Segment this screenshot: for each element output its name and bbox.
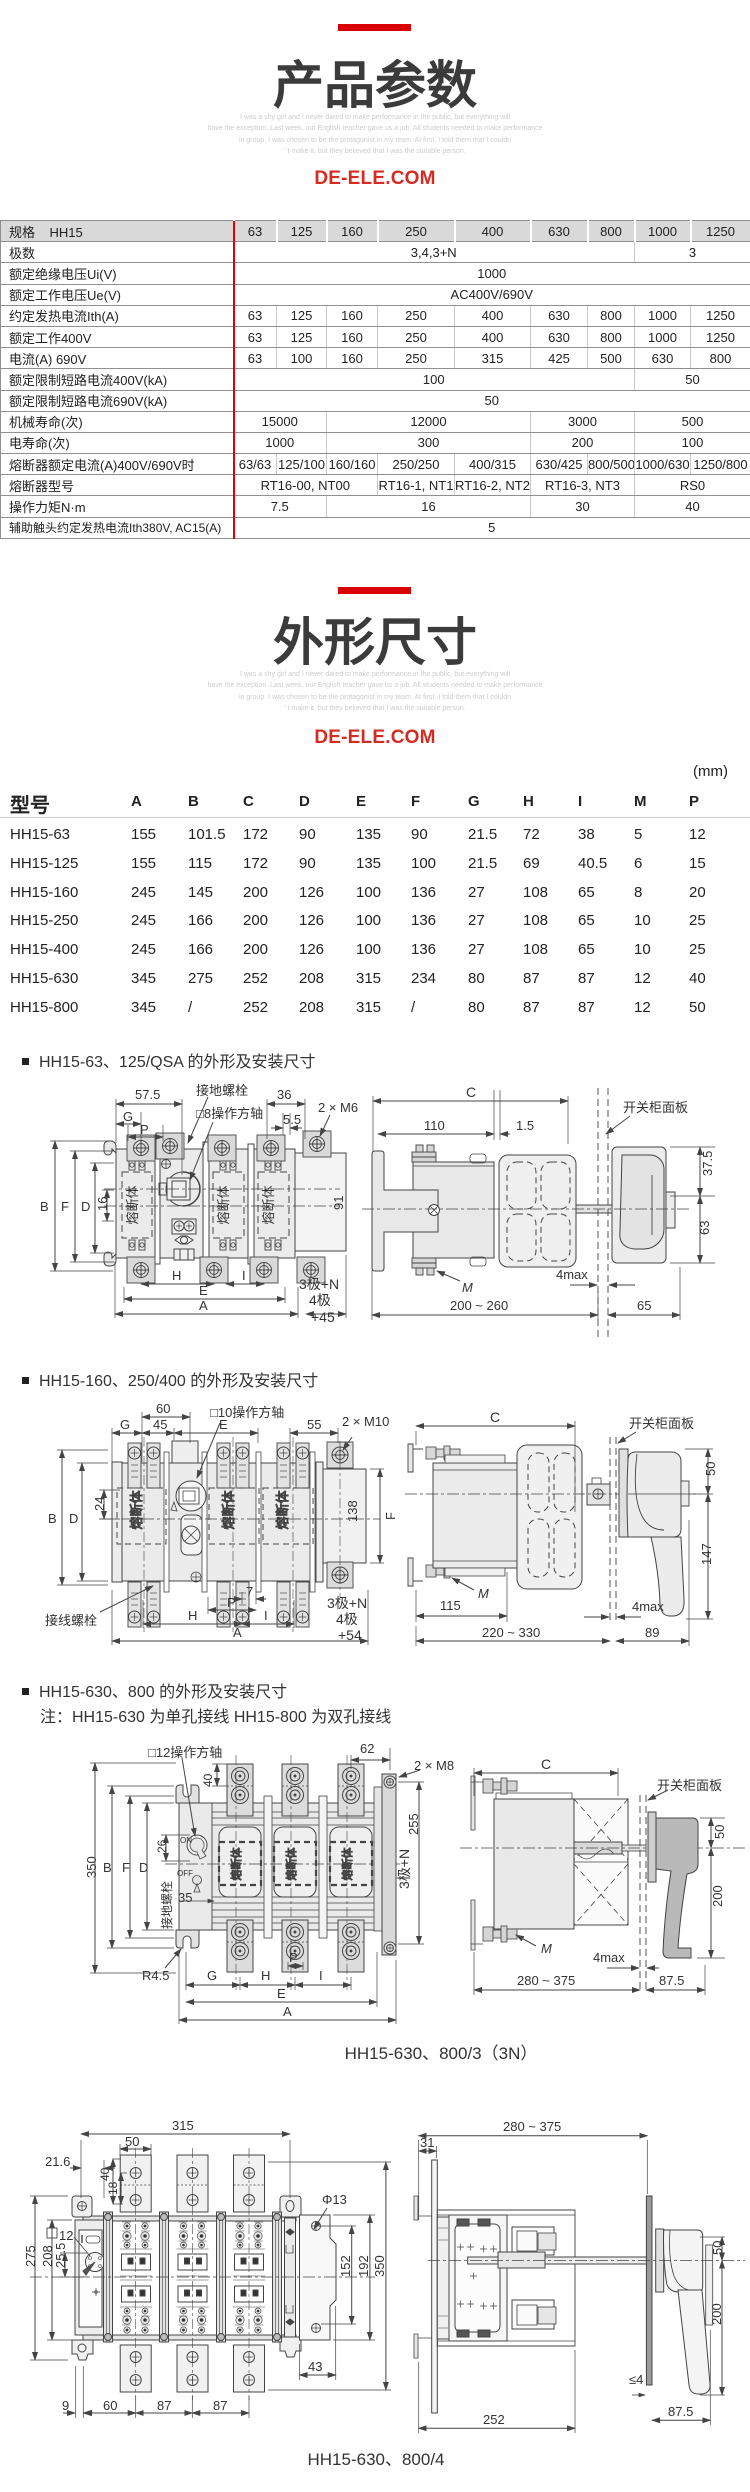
svg-text:350: 350: [84, 1856, 99, 1878]
svg-text:熔断体: 熔断体: [221, 1490, 236, 1529]
svg-text:3极+N: 3极+N: [299, 1276, 339, 1292]
svg-text:220 ~ 330: 220 ~ 330: [482, 1625, 540, 1640]
svg-text:18: 18: [106, 2181, 120, 2195]
svg-text:115: 115: [440, 1598, 461, 1613]
svg-text:25.5: 25.5: [53, 2243, 68, 2268]
svg-text:87.5: 87.5: [668, 2404, 693, 2419]
svg-text:P: P: [140, 1122, 149, 1137]
svg-text:+54: +54: [338, 1627, 362, 1643]
svg-text:I: I: [319, 1968, 323, 1983]
svg-text:F: F: [383, 1512, 398, 1520]
svg-text:37.5: 37.5: [700, 1151, 715, 1176]
svg-text:A: A: [283, 2004, 292, 2019]
svg-text:H: H: [188, 1608, 197, 1623]
svg-text:87.5: 87.5: [659, 1973, 684, 1988]
svg-text:4max: 4max: [556, 1267, 588, 1282]
svg-text:熔断体: 熔断体: [129, 1490, 144, 1529]
svg-text:315: 315: [172, 2118, 194, 2133]
svg-text:R4.5: R4.5: [142, 1968, 169, 1983]
svg-text:2 × M8: 2 × M8: [414, 1758, 454, 1773]
svg-text:C: C: [541, 1756, 551, 1772]
svg-text:4max: 4max: [632, 1599, 664, 1614]
svg-text:H: H: [261, 1968, 270, 1983]
svg-text:4极: 4极: [336, 1611, 358, 1627]
svg-text:F: F: [122, 1860, 130, 1875]
svg-text:9: 9: [62, 2398, 69, 2413]
svg-text:熔断体: 熔断体: [216, 1185, 231, 1224]
svg-text:3极+N: 3极+N: [396, 1849, 412, 1889]
svg-text:280 ~ 375: 280 ~ 375: [503, 2119, 561, 2134]
svg-text:开关柜面板: 开关柜面板: [657, 1778, 722, 1793]
svg-text:24: 24: [92, 1497, 107, 1511]
svg-text:60: 60: [103, 2398, 117, 2413]
svg-text:B: B: [48, 1511, 57, 1526]
svg-text:C: C: [466, 1084, 476, 1100]
svg-text:4max: 4max: [593, 1950, 625, 1965]
svg-text:12: 12: [59, 2228, 73, 2243]
svg-text:接地螺栓: 接地螺栓: [159, 1881, 174, 1929]
svg-text:275: 275: [23, 2245, 38, 2267]
svg-text:40: 40: [201, 1773, 215, 1787]
svg-text:50: 50: [712, 1825, 727, 1839]
svg-text:G: G: [207, 1968, 217, 1983]
svg-text:G: G: [123, 1109, 133, 1124]
svg-text:280 ~ 375: 280 ~ 375: [517, 1973, 575, 1988]
svg-text:21.6: 21.6: [45, 2154, 70, 2169]
svg-text:40: 40: [98, 2167, 112, 2181]
svg-text:□12操作方轴: □12操作方轴: [148, 1745, 222, 1760]
svg-text:Φ13: Φ13: [322, 2192, 347, 2207]
svg-text:60: 60: [156, 1401, 170, 1416]
svg-text:200: 200: [709, 2303, 724, 2325]
svg-text:E: E: [277, 1986, 286, 2001]
svg-text:50: 50: [710, 2241, 725, 2255]
svg-text:2 × M6: 2 × M6: [318, 1100, 358, 1115]
svg-text:I: I: [264, 1608, 268, 1623]
svg-text:P: P: [227, 1595, 236, 1610]
svg-text:43: 43: [308, 2359, 322, 2374]
svg-text:152: 152: [338, 2255, 353, 2277]
svg-text:G: G: [120, 1417, 130, 1432]
svg-text:接地螺栓: 接地螺栓: [196, 1083, 248, 1098]
svg-text:D: D: [139, 1860, 148, 1875]
svg-text:200: 200: [710, 1885, 725, 1907]
svg-text:□10操作方轴: □10操作方轴: [210, 1405, 284, 1420]
svg-text:A: A: [199, 1298, 208, 1313]
svg-text:200 ~ 260: 200 ~ 260: [450, 1298, 508, 1313]
svg-text:B: B: [103, 1860, 112, 1875]
svg-text:P: P: [289, 1950, 298, 1965]
svg-text:35: 35: [178, 1890, 192, 1905]
svg-text:87: 87: [157, 2398, 171, 2413]
svg-text:7: 7: [246, 1584, 253, 1599]
svg-text:26: 26: [155, 1839, 169, 1853]
svg-text:F: F: [61, 1199, 69, 1214]
svg-text:熔断体: 熔断体: [261, 1185, 276, 1224]
svg-text:C: C: [490, 1409, 500, 1425]
svg-text:50: 50: [703, 1462, 718, 1476]
svg-text:50: 50: [125, 2134, 139, 2149]
svg-text:2 × M10: 2 × M10: [342, 1414, 389, 1429]
svg-text:H: H: [172, 1268, 181, 1283]
svg-text:63: 63: [697, 1221, 712, 1235]
svg-text:1.5: 1.5: [516, 1118, 534, 1133]
svg-text:110: 110: [424, 1118, 445, 1133]
svg-text:255: 255: [406, 1813, 421, 1835]
svg-text:91: 91: [331, 1196, 346, 1210]
svg-text:87: 87: [213, 2398, 227, 2413]
svg-text:接线螺栓: 接线螺栓: [45, 1613, 97, 1628]
svg-text:B: B: [40, 1199, 49, 1214]
svg-text:D: D: [69, 1511, 78, 1526]
svg-text:开关柜面板: 开关柜面板: [629, 1416, 694, 1431]
svg-text:ON: ON: [180, 1836, 192, 1845]
svg-text:E: E: [199, 1283, 208, 1298]
svg-text:350: 350: [372, 2255, 387, 2277]
svg-text:62: 62: [360, 1741, 374, 1756]
svg-text:熔断体: 熔断体: [125, 1185, 140, 1224]
svg-text:5.5: 5.5: [283, 1112, 301, 1127]
svg-text:4极: 4极: [309, 1292, 331, 1308]
svg-text:I: I: [242, 1268, 246, 1283]
svg-text:M: M: [541, 1941, 552, 1956]
svg-text:138: 138: [345, 1500, 360, 1522]
svg-text:熔断体: 熔断体: [275, 1490, 290, 1529]
svg-text:57.5: 57.5: [135, 1087, 160, 1102]
svg-text:16: 16: [95, 1197, 110, 1211]
svg-text:36: 36: [277, 1087, 291, 1102]
svg-text:65: 65: [637, 1298, 651, 1313]
svg-text:55: 55: [307, 1417, 321, 1432]
svg-text:OFF: OFF: [177, 1869, 193, 1878]
svg-text:A: A: [233, 1625, 242, 1640]
svg-text:252: 252: [483, 2412, 505, 2427]
svg-text:□8操作方轴: □8操作方轴: [196, 1106, 263, 1121]
svg-text:M: M: [478, 1586, 489, 1601]
svg-text:31: 31: [420, 2135, 434, 2150]
svg-text:45: 45: [153, 1417, 167, 1432]
svg-text:D: D: [81, 1199, 90, 1214]
svg-text:3极+N: 3极+N: [327, 1595, 367, 1611]
svg-text:192: 192: [356, 2255, 371, 2277]
svg-text:≤4: ≤4: [629, 2372, 643, 2387]
svg-text:89: 89: [645, 1625, 659, 1640]
svg-text:开关柜面板: 开关柜面板: [623, 1100, 688, 1115]
svg-text:M: M: [462, 1280, 473, 1295]
svg-text:147: 147: [699, 1543, 714, 1565]
svg-text:+45: +45: [311, 1309, 335, 1325]
